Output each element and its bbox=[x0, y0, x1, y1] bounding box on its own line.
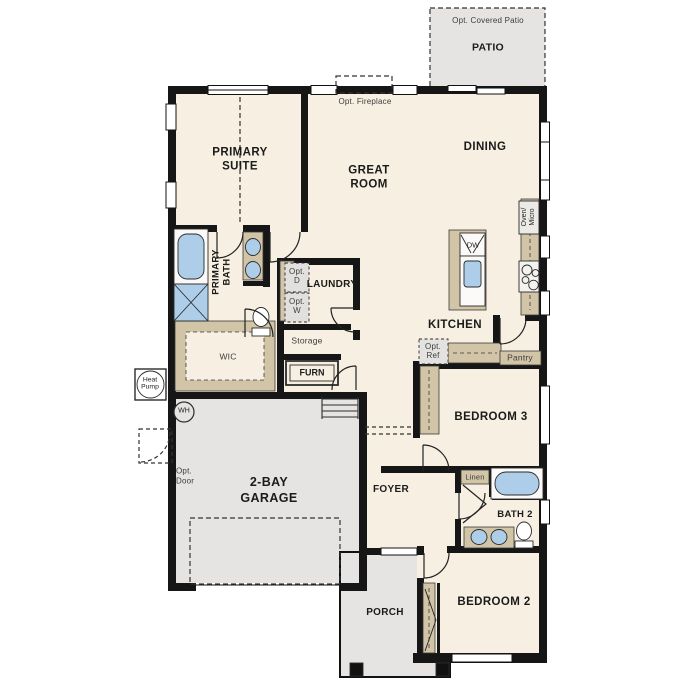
wall-segment bbox=[277, 354, 341, 360]
dishwasher-box bbox=[460, 233, 485, 256]
window bbox=[166, 182, 176, 208]
wall-segment bbox=[455, 473, 461, 493]
window bbox=[541, 236, 550, 258]
window bbox=[452, 654, 512, 662]
room-garage-floor bbox=[176, 399, 361, 585]
toilet-tank bbox=[515, 541, 533, 548]
wall-segment bbox=[413, 361, 420, 438]
wall-segment bbox=[525, 315, 541, 321]
toilet bbox=[517, 522, 532, 540]
wall-segment bbox=[359, 392, 367, 591]
wall-segment bbox=[455, 519, 461, 548]
room-bedroom2-floor bbox=[417, 548, 543, 653]
wall-segment bbox=[437, 583, 440, 653]
vanity-sink bbox=[491, 530, 507, 545]
front-door-opening bbox=[381, 548, 417, 555]
sliding-door bbox=[448, 86, 476, 92]
opt-refrigerator-box bbox=[419, 339, 448, 364]
wic-inner bbox=[186, 332, 264, 380]
wall-segment bbox=[263, 225, 270, 287]
vanity-sink bbox=[471, 530, 487, 545]
window bbox=[311, 86, 337, 95]
floor-plan: Opt. Covered Patio PATIO PRIMARY SUITE G… bbox=[0, 0, 687, 687]
wall-segment bbox=[301, 86, 308, 232]
opt-door-swing bbox=[140, 432, 170, 462]
window bbox=[393, 86, 417, 95]
room-patio-floor bbox=[430, 8, 545, 88]
wall-segment bbox=[359, 548, 381, 555]
window bbox=[541, 122, 550, 200]
plan-graphics bbox=[0, 0, 687, 687]
bedroom3-closet bbox=[420, 366, 439, 434]
wall-segment bbox=[168, 392, 367, 399]
vanity-sink bbox=[246, 239, 261, 256]
sliding-door bbox=[477, 88, 505, 94]
window bbox=[541, 500, 550, 524]
porch-post bbox=[350, 663, 363, 676]
porch-post bbox=[436, 663, 449, 676]
wall-segment bbox=[353, 258, 360, 310]
vanity-sink bbox=[246, 262, 261, 279]
linen-cabinet bbox=[461, 470, 489, 484]
bath2-tub bbox=[495, 472, 539, 495]
wall-segment bbox=[417, 546, 424, 555]
window bbox=[541, 291, 550, 315]
island-sink bbox=[464, 261, 481, 287]
toilet-tank bbox=[252, 328, 270, 336]
oven-micro-cabinet bbox=[519, 201, 539, 234]
opt-washer-box bbox=[285, 293, 309, 322]
window bbox=[541, 386, 550, 444]
opt-dryer-box bbox=[285, 263, 309, 292]
water-heater-circle bbox=[174, 402, 194, 422]
primary-tub bbox=[178, 234, 204, 279]
window bbox=[166, 104, 176, 130]
pantry-shelf bbox=[500, 351, 541, 365]
wall-segment bbox=[243, 281, 268, 286]
heat-pump-box bbox=[135, 369, 166, 400]
